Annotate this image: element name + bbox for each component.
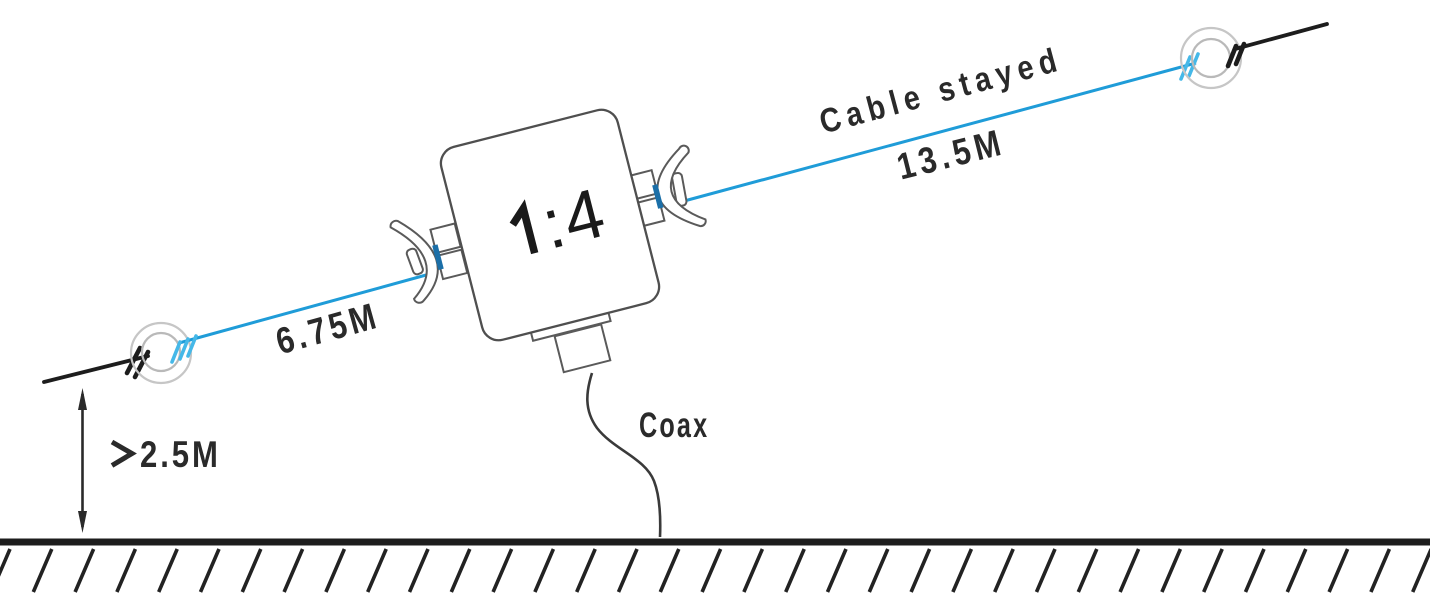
svg-text:Coax: Coax — [639, 406, 709, 445]
svg-text:2.5M: 2.5M — [140, 435, 221, 476]
